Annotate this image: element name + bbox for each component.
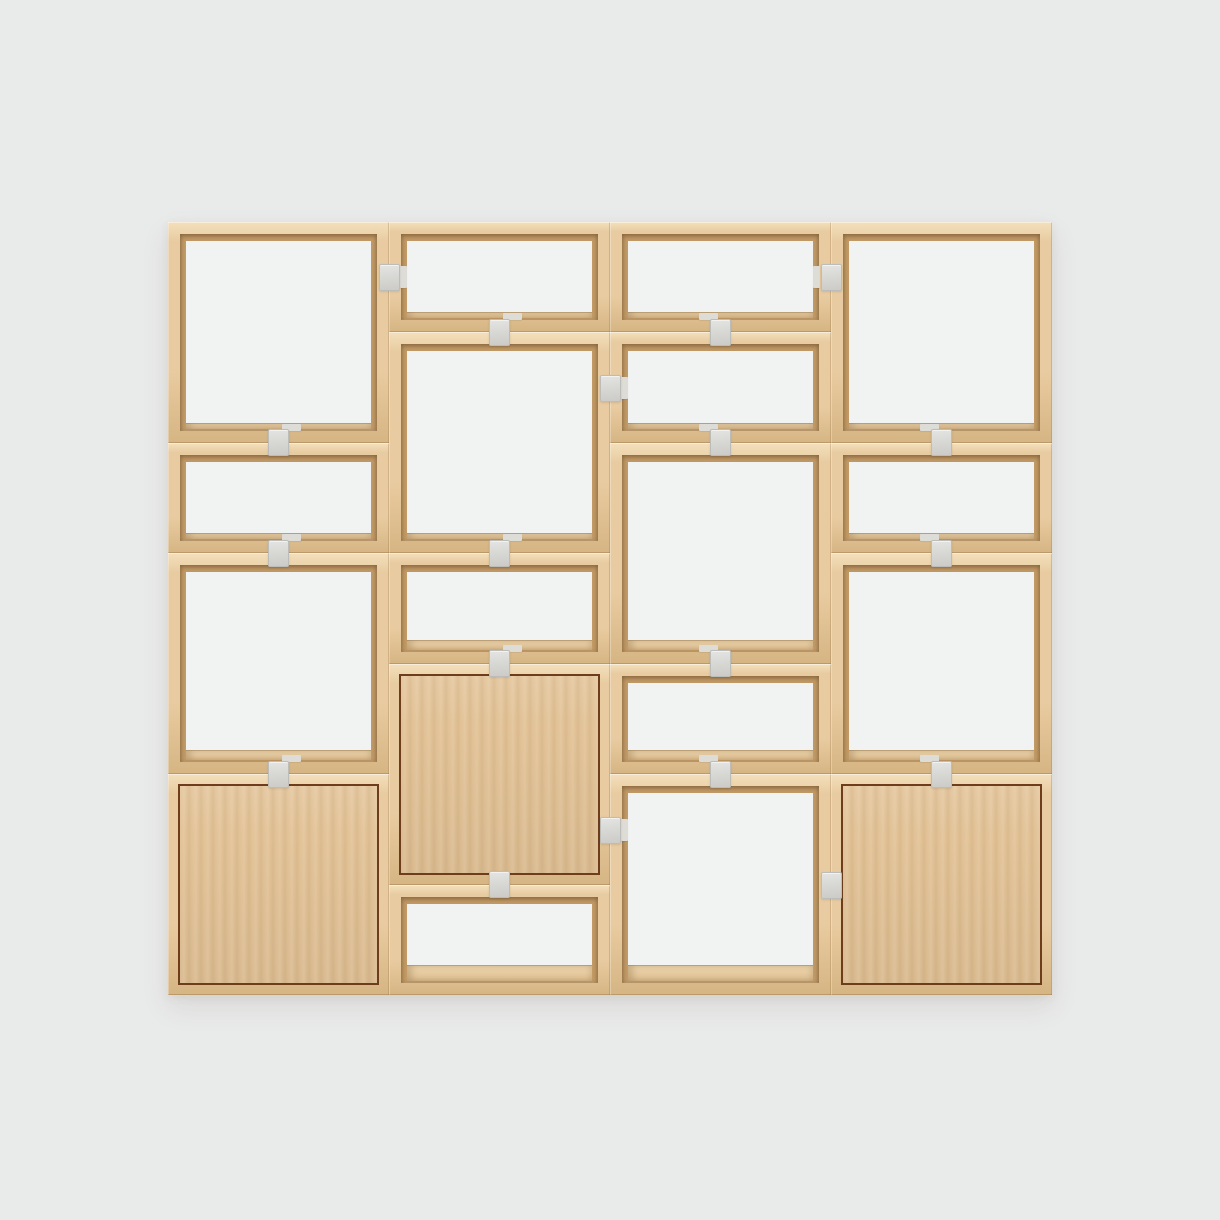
module-shelf-face <box>186 533 371 539</box>
connector-clip <box>489 650 510 677</box>
shelf-module-open <box>610 443 831 664</box>
module-opening <box>401 344 598 541</box>
shelf-module-open <box>389 332 610 553</box>
connector-clip <box>379 264 400 291</box>
shelf-module-open <box>389 885 610 995</box>
shelf-module-door <box>831 774 1052 995</box>
module-interior <box>628 683 813 750</box>
module-interior <box>628 241 813 312</box>
connector-clip <box>821 264 842 291</box>
shelf-module-open <box>168 222 389 443</box>
module-shelf-face <box>407 965 592 981</box>
cabinet-door-outline <box>841 784 1042 985</box>
module-interior <box>849 572 1034 750</box>
module-opening <box>843 455 1040 541</box>
cabinet-door <box>180 786 377 983</box>
module-shelf-face <box>628 750 813 760</box>
module-interior <box>628 462 813 640</box>
module-shelf-face <box>186 423 371 429</box>
module-shelf-face <box>628 640 813 650</box>
module-opening <box>180 234 377 431</box>
module-interior <box>628 793 813 965</box>
module-opening <box>622 455 819 652</box>
module-shelf-face <box>628 965 813 981</box>
module-interior <box>186 572 371 750</box>
module-shelf-face <box>849 533 1034 539</box>
connector-clip-back <box>621 819 628 841</box>
module-opening <box>622 786 819 983</box>
module-opening <box>401 565 598 651</box>
connector-clip-back <box>813 266 820 288</box>
cabinet-door <box>401 676 598 873</box>
module-shelf-face <box>407 640 592 650</box>
module-interior <box>407 351 592 533</box>
shelf-module-open <box>389 222 610 332</box>
module-opening <box>843 565 1040 762</box>
connector-clip <box>931 761 952 788</box>
module-shelf-face <box>849 423 1034 429</box>
module-interior <box>849 241 1034 423</box>
module-interior <box>407 241 592 312</box>
connector-clip <box>489 871 510 898</box>
connector-clip <box>600 817 621 844</box>
connector-clip <box>710 429 731 456</box>
module-shelf-face <box>407 312 592 318</box>
connector-clip-back <box>621 377 628 399</box>
module-opening <box>401 234 598 320</box>
module-interior <box>186 241 371 423</box>
module-interior <box>407 904 592 965</box>
shelving-unit <box>168 222 1052 995</box>
module-shelf-face <box>849 750 1034 760</box>
connector-clip <box>489 540 510 567</box>
connector-clip <box>821 872 842 899</box>
shelf-module-open <box>831 222 1052 443</box>
shelf-module-open <box>168 553 389 774</box>
module-opening <box>180 455 377 541</box>
module-opening <box>843 234 1040 431</box>
connector-clip <box>268 761 289 788</box>
connector-clip <box>600 375 621 402</box>
module-shelf-face <box>407 533 592 539</box>
product-photo <box>0 0 1220 1220</box>
shelf-module-door <box>389 664 610 885</box>
cabinet-door <box>843 786 1040 983</box>
connector-clip <box>710 319 731 346</box>
connector-clip <box>268 540 289 567</box>
shelf-module-open <box>610 222 831 332</box>
shelf-module-open <box>610 774 831 995</box>
connector-clip <box>489 319 510 346</box>
module-opening <box>180 565 377 762</box>
shelf-module-open <box>168 443 389 553</box>
connector-clip <box>931 540 952 567</box>
cabinet-door-outline <box>399 674 600 875</box>
module-interior <box>849 462 1034 533</box>
connector-clip-back <box>400 266 407 288</box>
shelf-module-open <box>389 553 610 663</box>
module-shelf-face <box>628 312 813 318</box>
connector-clip <box>710 650 731 677</box>
shelf-module-door <box>168 774 389 995</box>
module-interior <box>628 351 813 422</box>
module-opening <box>401 897 598 983</box>
module-opening <box>622 676 819 762</box>
module-shelf-face <box>628 423 813 429</box>
module-interior <box>407 572 592 639</box>
cabinet-door-outline <box>178 784 379 985</box>
module-interior <box>186 462 371 533</box>
shelf-module-open <box>831 443 1052 553</box>
connector-clip <box>931 429 952 456</box>
module-shelf-face <box>186 750 371 760</box>
shelf-module-open <box>831 553 1052 774</box>
connector-clip <box>710 761 731 788</box>
module-opening <box>622 234 819 320</box>
shelf-module-open <box>610 332 831 442</box>
module-opening <box>622 344 819 430</box>
connector-clip <box>268 429 289 456</box>
shelf-module-open <box>610 664 831 774</box>
